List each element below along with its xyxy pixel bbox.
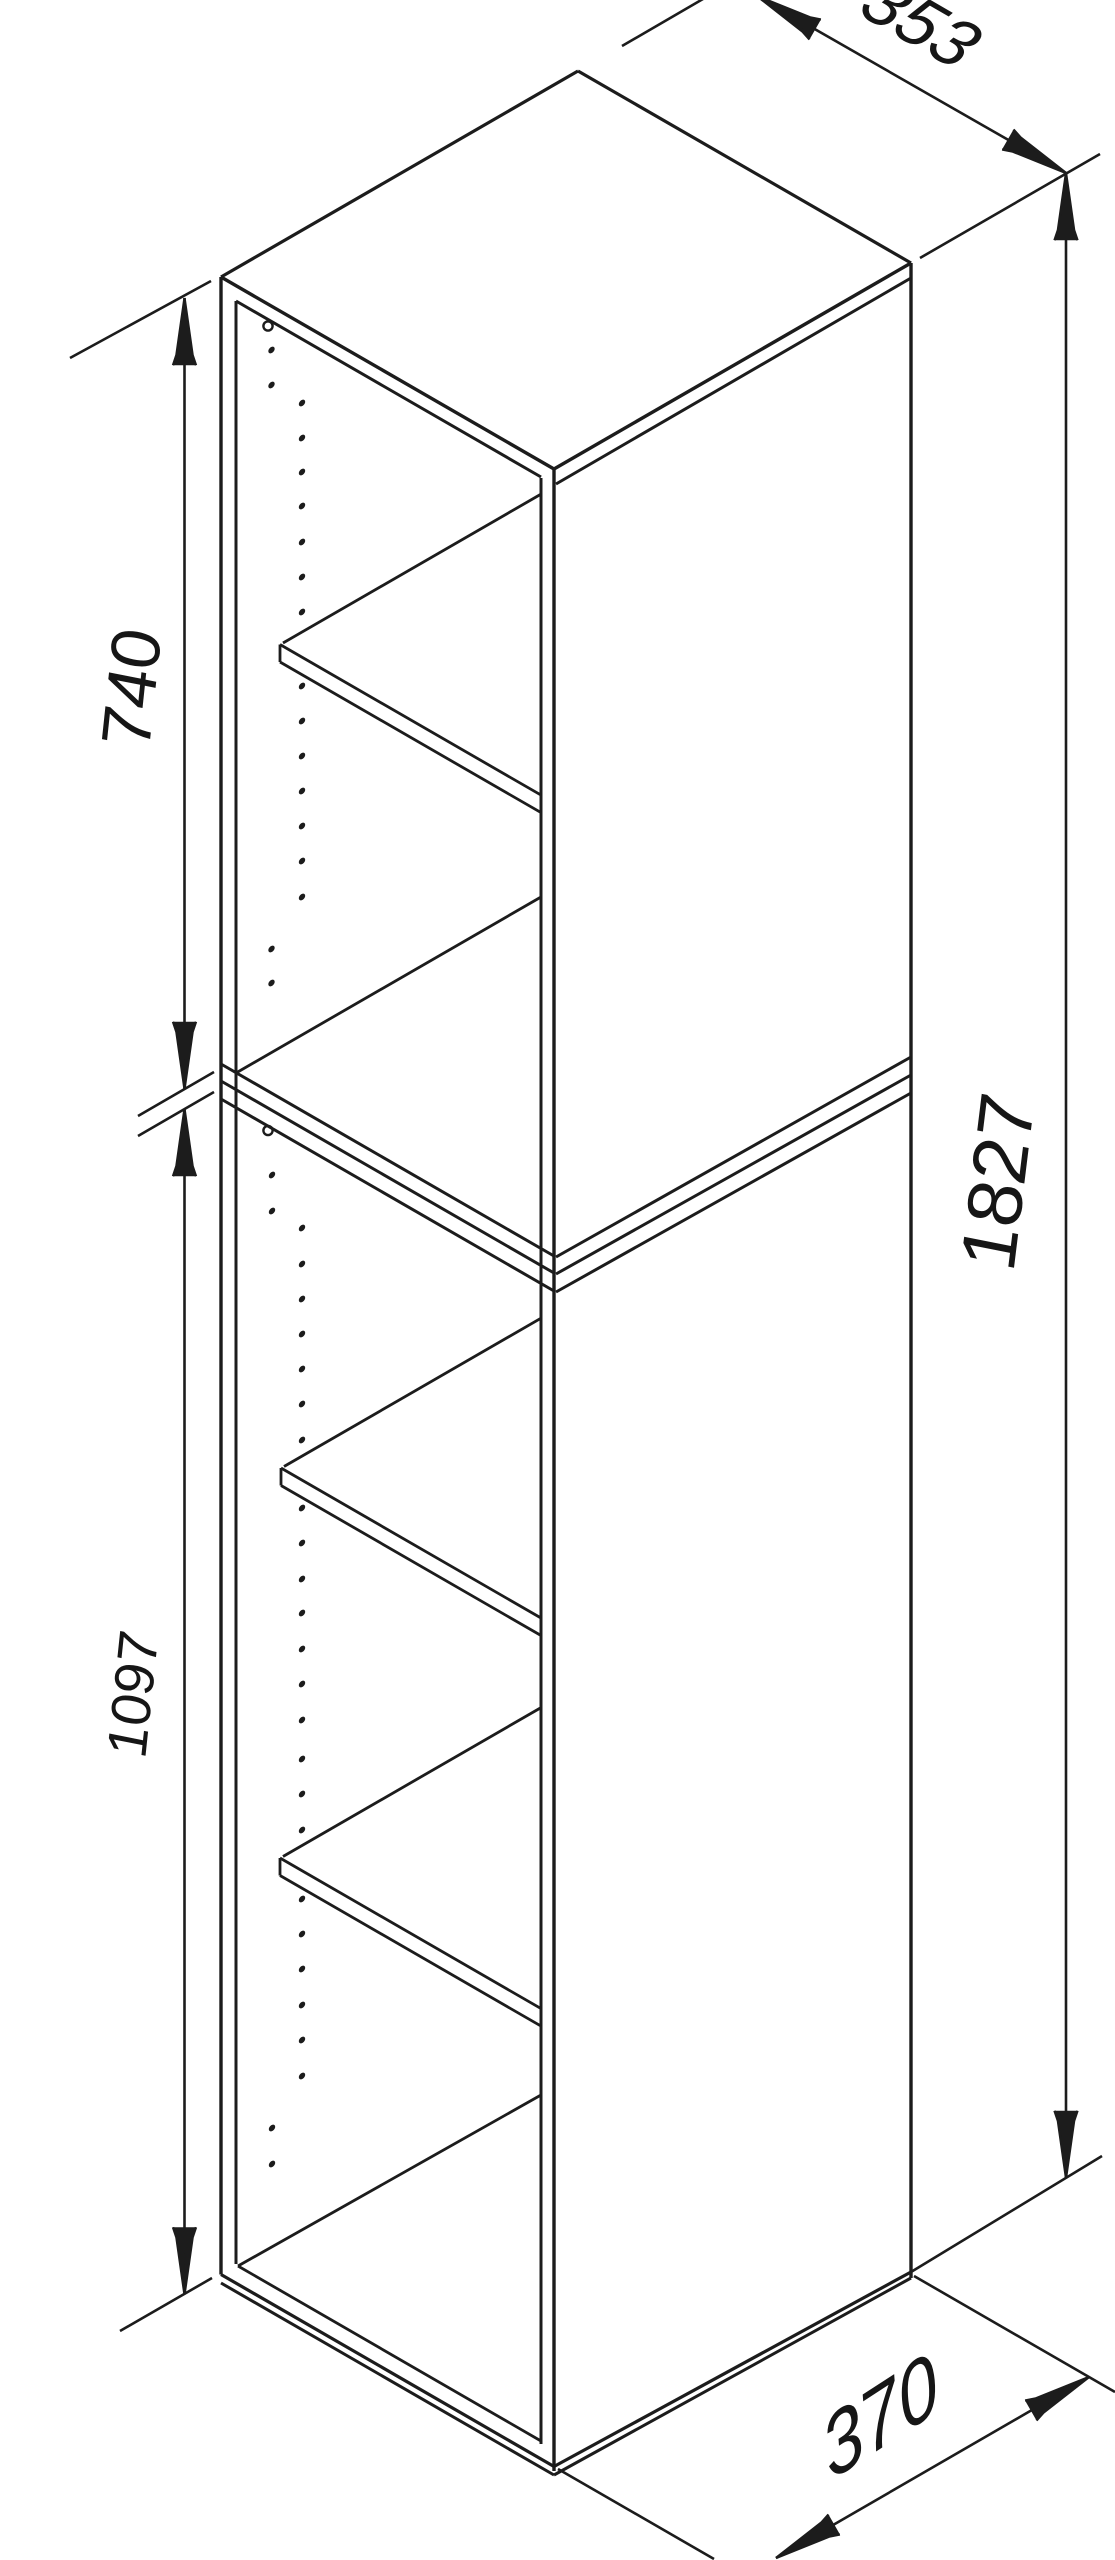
svg-text:1097: 1097 xyxy=(95,1631,171,1757)
svg-text:740: 740 xyxy=(85,631,176,748)
